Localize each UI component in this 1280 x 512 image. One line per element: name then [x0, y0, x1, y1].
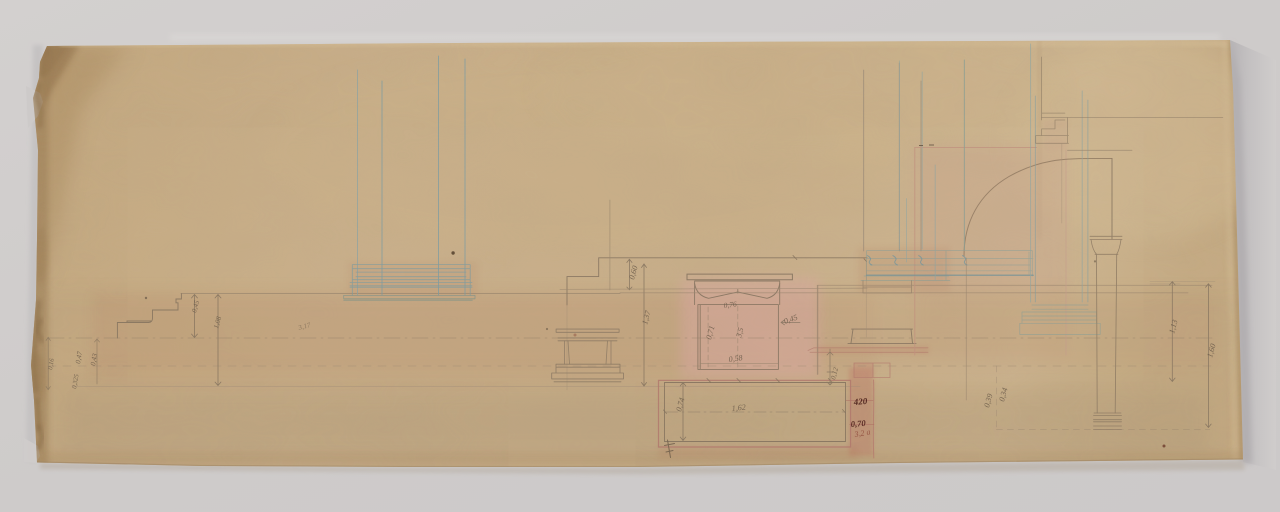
- svg-text:1,62: 1,62: [731, 403, 746, 413]
- svg-text:0,76: 0,76: [723, 299, 737, 310]
- svg-text:420: 420: [852, 396, 868, 407]
